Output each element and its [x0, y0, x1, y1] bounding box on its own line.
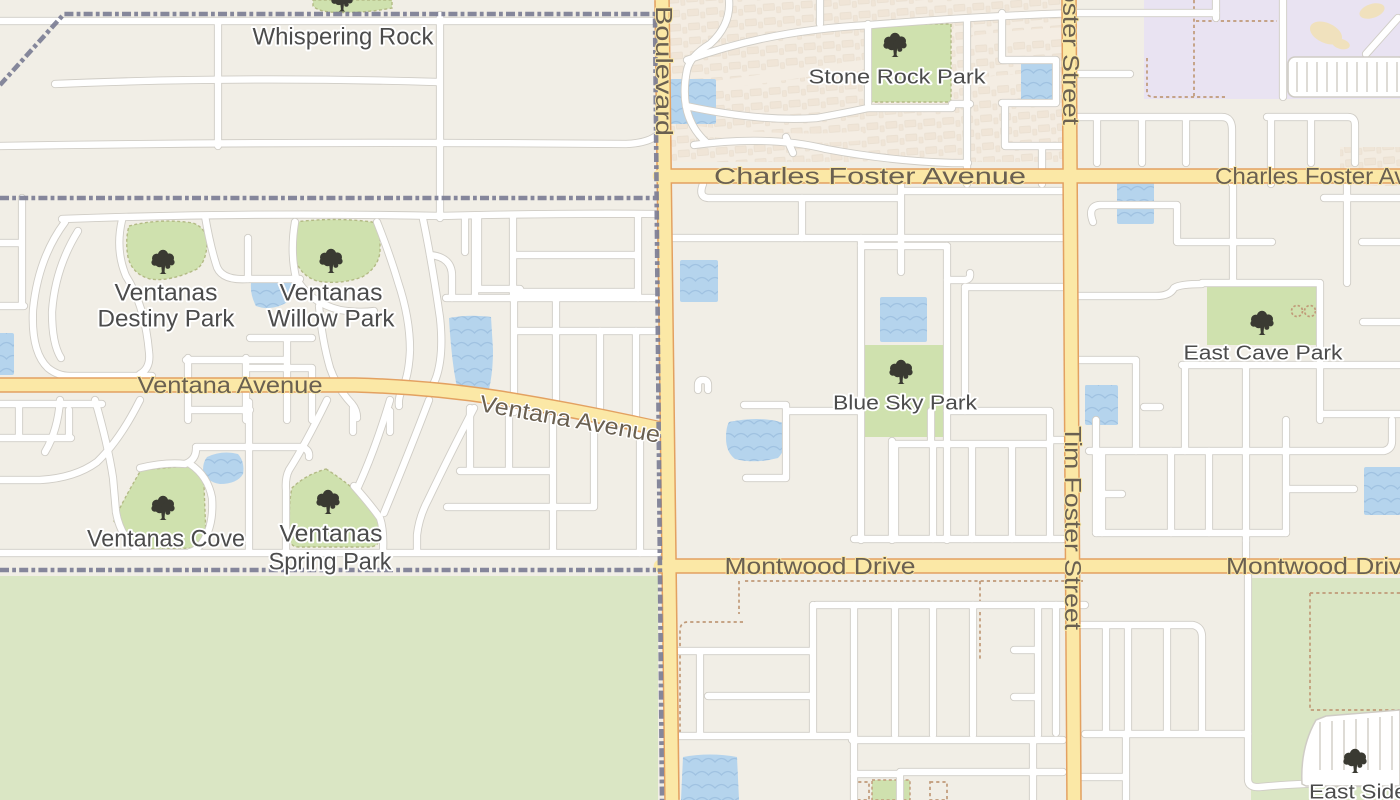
svg-text:Ventanas Cove: Ventanas Cove: [87, 526, 245, 553]
svg-text:Ventanas: Ventanas: [115, 280, 218, 307]
svg-text:Ventanas: Ventanas: [280, 280, 383, 307]
svg-text:Blue Sky Park: Blue Sky Park: [833, 392, 978, 415]
svg-text:Charles Foster Avenue: Charles Foster Avenue: [714, 163, 1026, 189]
svg-text:Stone Rock Park: Stone Rock Park: [809, 66, 987, 89]
svg-text:Tim Foster Street: Tim Foster Street: [1060, 426, 1086, 631]
svg-text:Destiny Park: Destiny Park: [98, 306, 236, 333]
svg-text:Ventanas: Ventanas: [280, 521, 383, 548]
svg-text:Spring Park: Spring Park: [269, 549, 393, 576]
svg-text:Whispering Rock: Whispering Rock: [253, 24, 435, 51]
svg-text:Tim Foster Street: Tim Foster Street: [1058, 0, 1084, 126]
svg-text:Montwood Drive: Montwood Drive: [725, 553, 916, 579]
svg-text:East Side: East Side: [1309, 781, 1400, 800]
svg-text:Charles Foster Avenue: Charles Foster Avenue: [1215, 163, 1400, 189]
svg-text:Ventana Avenue: Ventana Avenue: [138, 372, 323, 398]
svg-text:Montwood Drive: Montwood Drive: [1226, 553, 1400, 579]
svg-text:Boulevard: Boulevard: [651, 6, 677, 136]
svg-text:East Cave Park: East Cave Park: [1184, 342, 1344, 365]
svg-text:Willow Park: Willow Park: [268, 306, 396, 333]
